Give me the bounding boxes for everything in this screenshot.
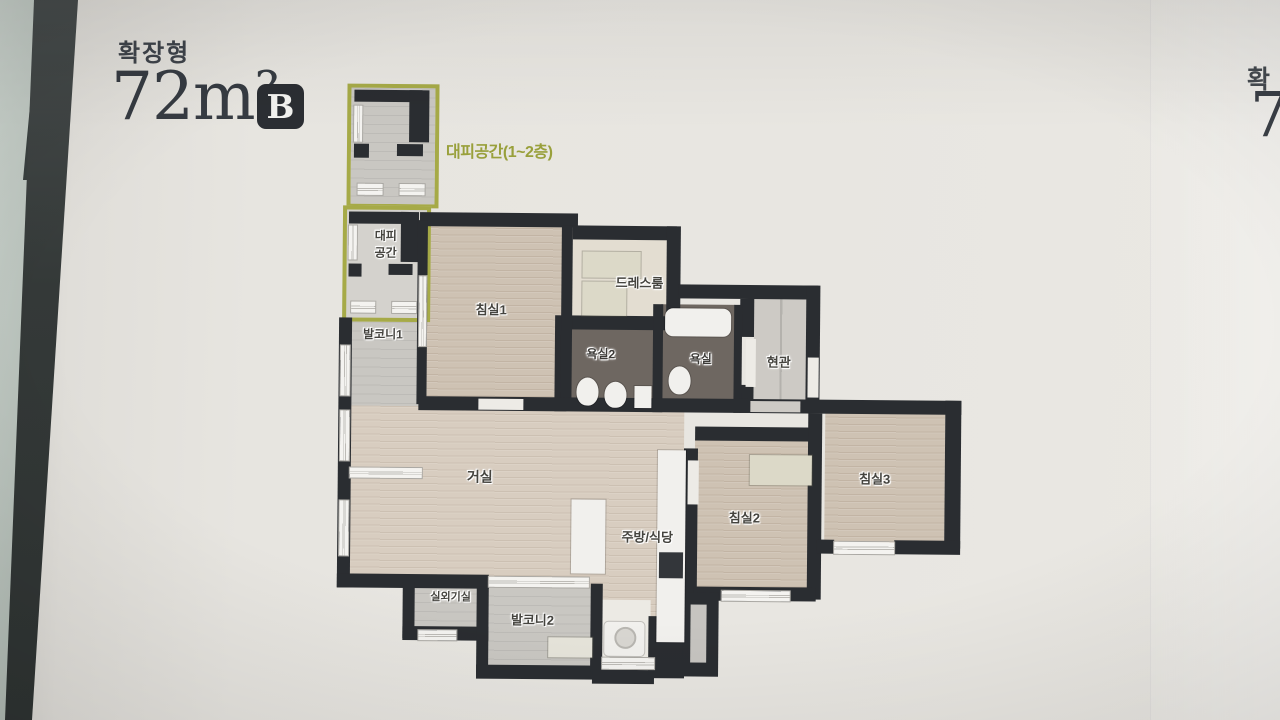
balcony2-fixture: [548, 637, 592, 657]
room-label-bedroom1: 침실1: [476, 299, 507, 318]
wall: [348, 263, 361, 276]
door-opening: [746, 339, 756, 387]
window: [722, 591, 790, 602]
wall: [816, 540, 834, 554]
room-label-evacuation: 대피공간: [375, 227, 397, 261]
toilet: [576, 377, 598, 405]
wall: [560, 225, 573, 399]
wall: [401, 212, 419, 262]
wall: [733, 305, 742, 413]
room-label-kitchen: 주방/식당: [621, 526, 673, 545]
wall: [420, 212, 578, 227]
kitchen-stove: [659, 552, 683, 578]
window: [340, 410, 349, 460]
window: [834, 542, 894, 555]
wall: [409, 90, 429, 142]
wall: [652, 304, 663, 412]
window: [392, 302, 416, 313]
washing-machine: [604, 622, 644, 656]
wall: [476, 665, 598, 680]
room-label-living: 거실: [467, 467, 493, 487]
evacuation-space-caption: 대피공간(1~2층): [446, 138, 552, 162]
wall: [476, 587, 489, 677]
room-label-balcony1: 발코니1: [363, 325, 403, 342]
window: [351, 301, 375, 312]
room-label-bathroom1: 욕실: [690, 350, 712, 367]
window: [418, 630, 456, 640]
room-label-bedroom3: 침실3: [859, 468, 890, 487]
unit-type-badge: B: [257, 84, 304, 129]
wall: [573, 225, 677, 240]
door-opening: [807, 357, 818, 397]
kitchen-counter: [656, 450, 686, 642]
room-label-outdoor-unit: 실외기실: [430, 588, 471, 604]
toilet: [668, 366, 690, 394]
floor-plan: 대피공간 발코니1 침실1 드레스룸 욕실2 욕실 현관 거실 주방/식당 침실…: [336, 205, 988, 699]
window: [602, 658, 654, 669]
toilet: [604, 382, 626, 408]
kitchen-island: [571, 499, 606, 573]
wall: [354, 144, 369, 158]
window: [339, 500, 348, 555]
window: [400, 184, 425, 195]
window: [350, 467, 422, 478]
wall: [894, 540, 960, 555]
wall: [397, 144, 423, 156]
wall: [590, 584, 603, 672]
room-label-bedroom2: 침실2: [729, 507, 760, 526]
room-label-dressroom: 드레스룸: [615, 272, 663, 291]
wall: [592, 670, 654, 685]
window: [340, 345, 349, 395]
duct-shaft: [690, 604, 707, 662]
door-opening: [750, 401, 800, 412]
wall: [944, 401, 961, 549]
evacuation-space-inset-plan: [346, 84, 439, 209]
room-label-bathroom2: 욕실2: [586, 345, 615, 362]
adjacent-page-area: 7: [1250, 78, 1280, 151]
wall: [678, 284, 818, 299]
window: [489, 577, 589, 588]
wall: [695, 426, 820, 441]
wall: [389, 264, 413, 275]
bathtub: [665, 308, 731, 337]
window: [354, 106, 362, 142]
bathroom-counter: [634, 386, 651, 408]
wall: [807, 413, 823, 599]
area-title: 72m²: [111, 58, 280, 135]
brochure-board: 확 7 확장형 72m² B 대피공간(1~2층): [0, 0, 1280, 720]
wall: [666, 226, 681, 318]
window: [419, 276, 427, 346]
door-opening: [688, 460, 699, 504]
room-label-entrance: 현관: [767, 352, 791, 371]
window: [358, 184, 383, 195]
window: [349, 225, 357, 259]
bedroom2-closet: [750, 455, 812, 486]
washing-machine-door: [614, 627, 636, 649]
room-label-balcony2: 발코니2: [511, 609, 554, 628]
door-opening: [478, 399, 523, 410]
